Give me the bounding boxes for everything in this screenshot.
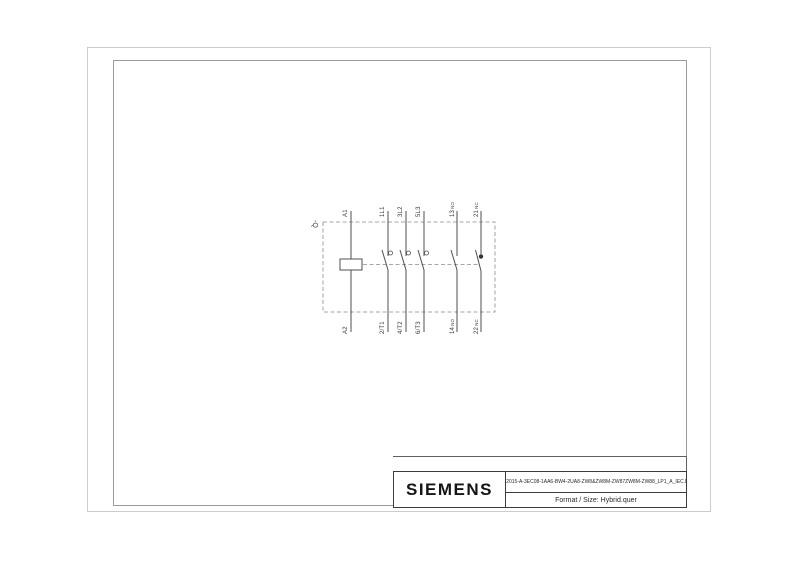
terminal-number: 22 (474, 327, 480, 334)
title-block-right: 3RT2015-A-3EC08-1AA6-BW4-2UA8-ZW8&ZW8M-Z… (506, 472, 686, 507)
main-contact-symbol-2 (400, 211, 411, 332)
terminal-label-13no: 13NO (449, 202, 457, 217)
terminal-label-a2: A2 (343, 326, 350, 334)
contact-type-suffix: NC (474, 202, 479, 209)
terminal-label-5l3: 5L3 (416, 206, 423, 217)
contact-type-suffix: NO (450, 202, 455, 209)
terminal-number: 13 (450, 210, 456, 217)
terminal-label-21nc: 21NC (473, 202, 481, 217)
contact-type-suffix: NO (450, 319, 455, 326)
main-contact-symbol-1 (382, 211, 393, 332)
terminal-label-a1: A1 (343, 209, 350, 217)
title-block: SIEMENS 3RT2015-A-3EC08-1AA6-BW4-2UA8-ZW… (393, 471, 687, 508)
terminal-label-2t1: 2/T1 (380, 321, 387, 334)
drawing-page: -Q A1 1L1 3L2 5L3 13NO 21NC A2 2/T1 4/T2… (0, 0, 800, 565)
drawing-filename: 3RT2015-A-3EC08-1AA6-BW4-2UA8-ZW8&ZW8M-Z… (506, 472, 686, 493)
terminal-label-14no: 14NO (449, 319, 457, 334)
terminal-number: 21 (474, 210, 480, 217)
title-block-empty-row (393, 456, 687, 471)
terminal-label-6t3: 6/T3 (416, 321, 423, 334)
terminal-label-22nc: 22NC (473, 319, 481, 334)
terminal-label-4t2: 4/T2 (398, 321, 405, 334)
device-tag-label: -Q (311, 220, 318, 228)
main-contact-symbol-3 (418, 211, 429, 332)
contact-type-suffix: NC (474, 319, 479, 326)
terminal-number: 14 (450, 327, 456, 334)
aux-no-contact-symbol (451, 211, 457, 332)
siemens-logo: SIEMENS (394, 472, 506, 507)
aux-nc-contact-symbol (476, 211, 484, 332)
terminal-label-3l2: 3L2 (398, 206, 405, 217)
format-size-label: Format / Size: Hybrid.quer (506, 493, 686, 507)
coil-symbol (340, 211, 362, 332)
terminal-label-1l1: 1L1 (380, 206, 387, 217)
